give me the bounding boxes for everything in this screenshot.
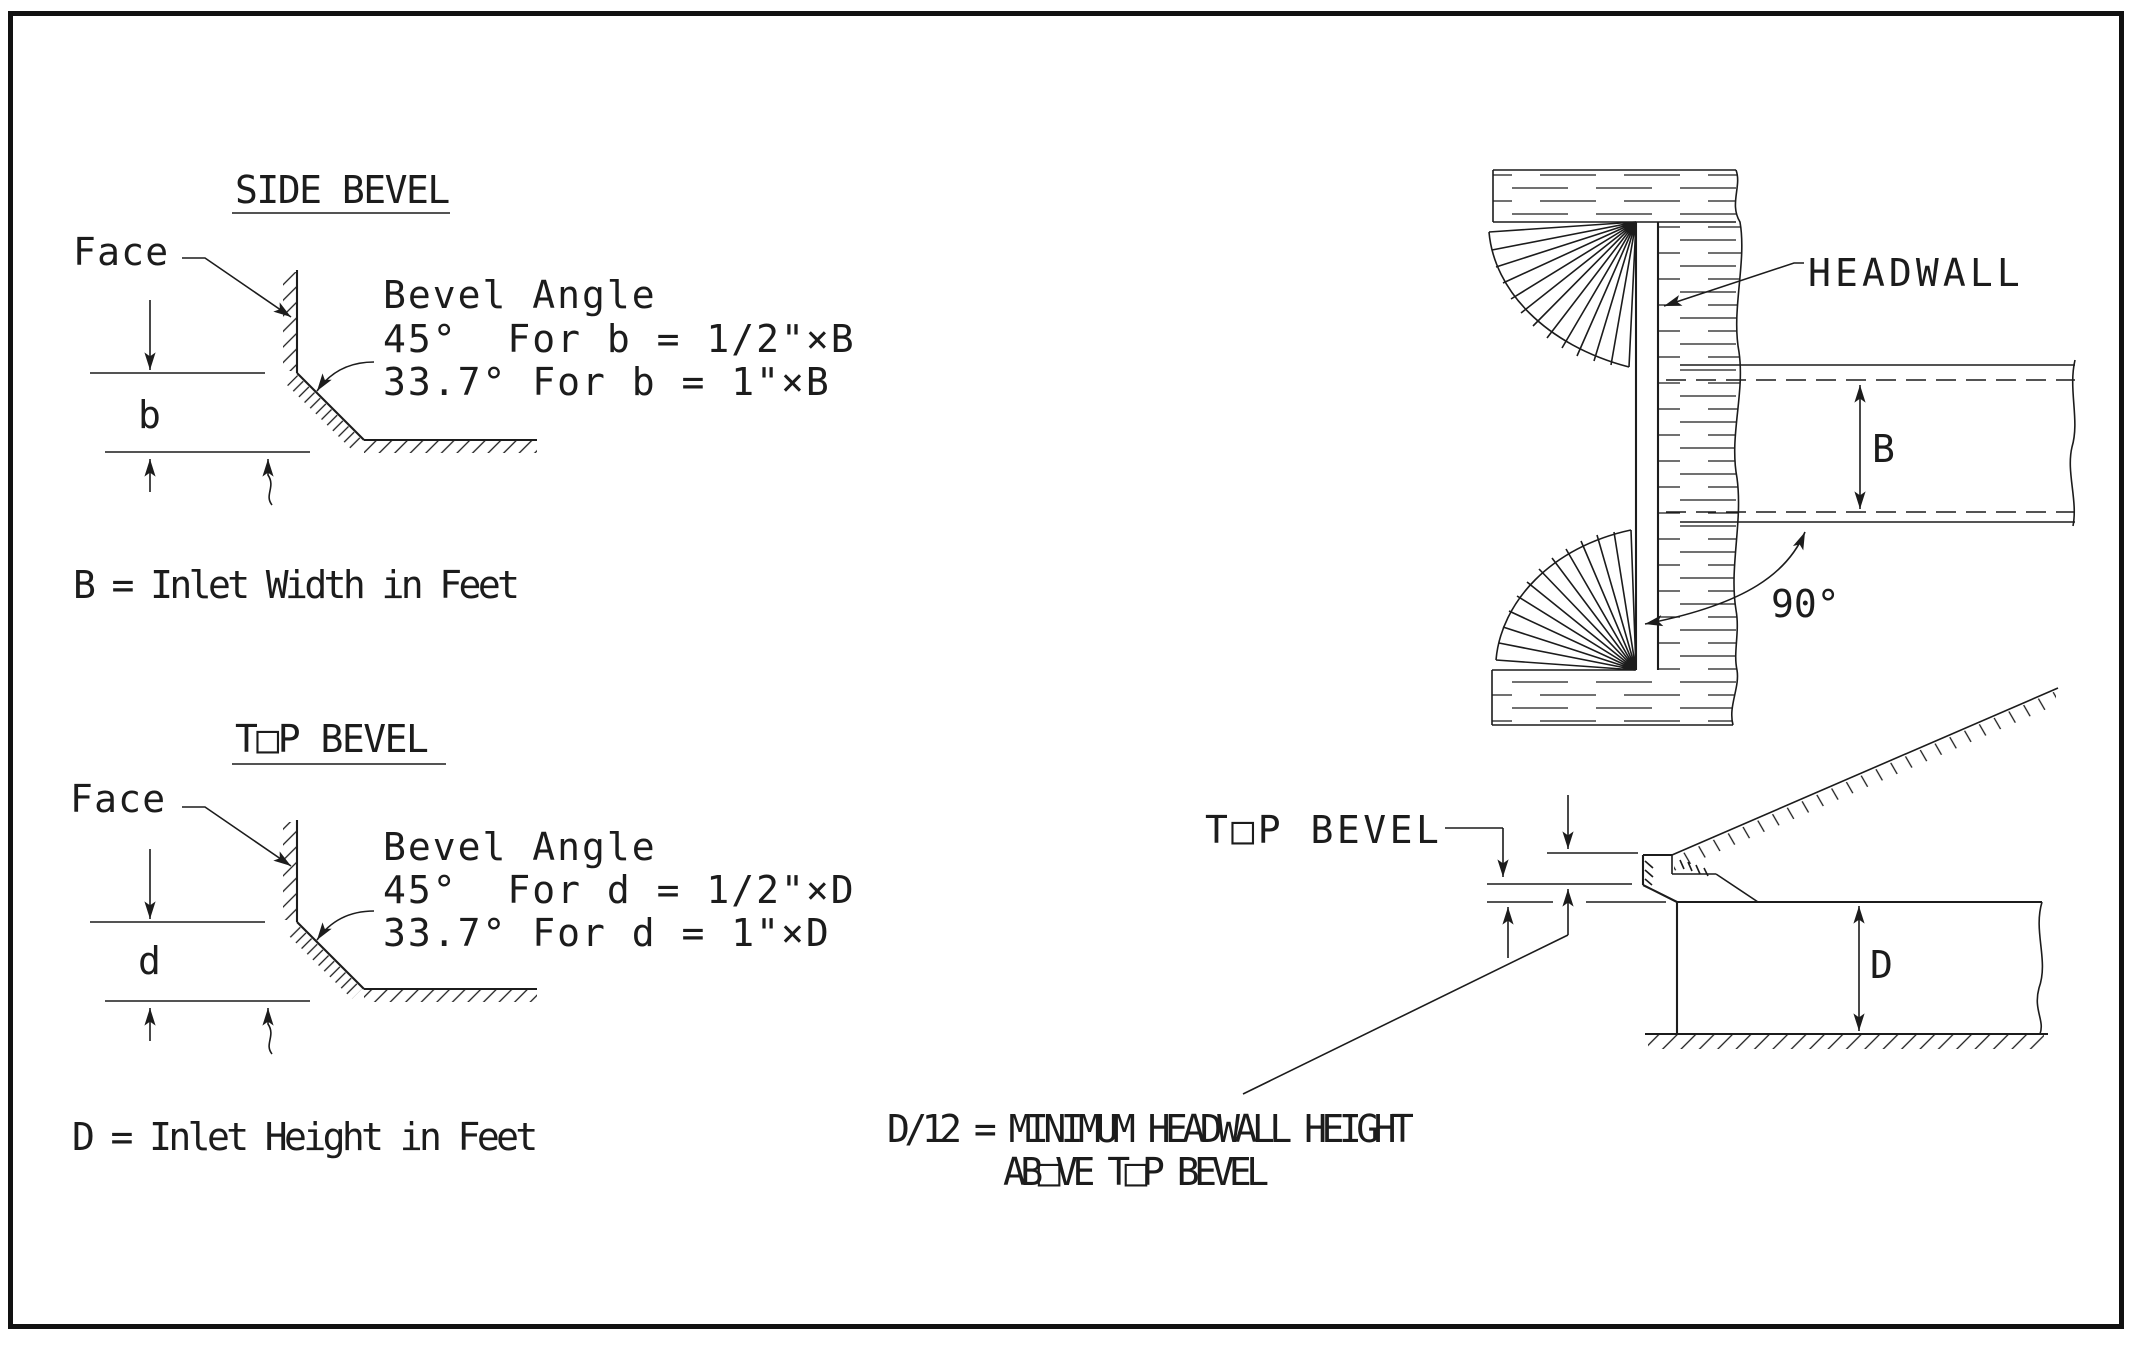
- bevel-hatching: [287, 924, 362, 999]
- inlet-height-caption: D = Inlet Height in Feet: [72, 1115, 535, 1159]
- backfill-band: [1658, 222, 1742, 670]
- min-headwall-height-note-line1: D/12 = MINIMUM HEADWALL HEIGHT: [887, 1107, 1413, 1151]
- height-dim-label-d: d: [138, 939, 161, 983]
- min-headwall-height-note-line2: AB□VE T□P BEVEL: [1003, 1150, 1268, 1194]
- inlet-width-caption: B = Inlet Width in Feet: [73, 563, 517, 607]
- face-label: Face: [73, 230, 169, 274]
- top-bevel-detail: T□P BEVEL Face d Bevel Angle 45° For d =…: [70, 717, 856, 1159]
- side-bevel-title: SIDE BEVEL: [235, 168, 449, 212]
- bevel-line: [297, 922, 364, 989]
- top-bevel-leader-arrow: [1445, 828, 1503, 877]
- face-label: Face: [70, 777, 166, 821]
- bevel-angle-note-line2: 45° For b = 1/2"×B: [383, 317, 856, 361]
- ground-hatching: [364, 990, 537, 1002]
- bevel-angle-note-line1: Bevel Angle: [383, 825, 657, 869]
- bevel-angle-note-line3: 33.7° For d = 1"×D: [383, 911, 831, 955]
- lower-wingwall-band: [1492, 670, 1737, 725]
- skew-angle-label: 90°: [1771, 582, 1840, 626]
- upper-wingwall-band: [1493, 170, 1740, 222]
- face-hatching: [283, 822, 296, 920]
- ground-hatching: [364, 441, 537, 453]
- width-dim-label: B: [1872, 427, 1895, 471]
- bevel-angle-note-line2: 45° For d = 1/2"×D: [383, 868, 856, 912]
- top-bevel-line: [1643, 885, 1677, 902]
- headwall-plan-view: B HEADWALL 90°: [1489, 170, 2075, 725]
- min-height-leader-line: [1243, 935, 1568, 1094]
- height-dim-label: D: [1870, 943, 1893, 987]
- ground-hatching: [1648, 1035, 2044, 1049]
- headwall-elevation-view: D T□P BEVEL D/12 = MINIMUM HEADWALL HEIG…: [887, 688, 2058, 1194]
- width-dim-label-b: b: [138, 393, 161, 437]
- top-bevel-title: T□P BEVEL: [235, 717, 428, 761]
- lower-fan-rays: [1496, 530, 1636, 670]
- break-leader-arrow: [268, 1008, 272, 1054]
- culvert-break-edge: [2037, 902, 2042, 1034]
- face-leader-arrow: [182, 807, 291, 866]
- bevel-hatching: [287, 375, 362, 450]
- bevel-angle-note-line1: Bevel Angle: [383, 273, 657, 317]
- face-hatch-ticks: [1645, 861, 1653, 885]
- bevel-line: [297, 373, 364, 440]
- headwall-label: HEADWALL: [1808, 251, 2024, 295]
- drawing-canvas: SIDE BEVEL Face b Bevel Angle 45° For b …: [0, 0, 2140, 1348]
- bevel-angle-leader-arrow: [317, 911, 374, 940]
- upper-fan-rays: [1489, 222, 1636, 367]
- bevel-angle-leader-arrow: [317, 362, 374, 391]
- side-bevel-detail: SIDE BEVEL Face b Bevel Angle 45° For b …: [73, 168, 856, 607]
- bevel-angle-note-line3: 33.7° For b = 1"×B: [383, 360, 831, 404]
- top-bevel-label: T□P BEVEL: [1205, 808, 1442, 852]
- face-leader-arrow: [182, 258, 291, 317]
- break-leader-arrow: [268, 459, 272, 505]
- face-hatching: [283, 272, 296, 371]
- culvert-break-edge: [2070, 360, 2075, 526]
